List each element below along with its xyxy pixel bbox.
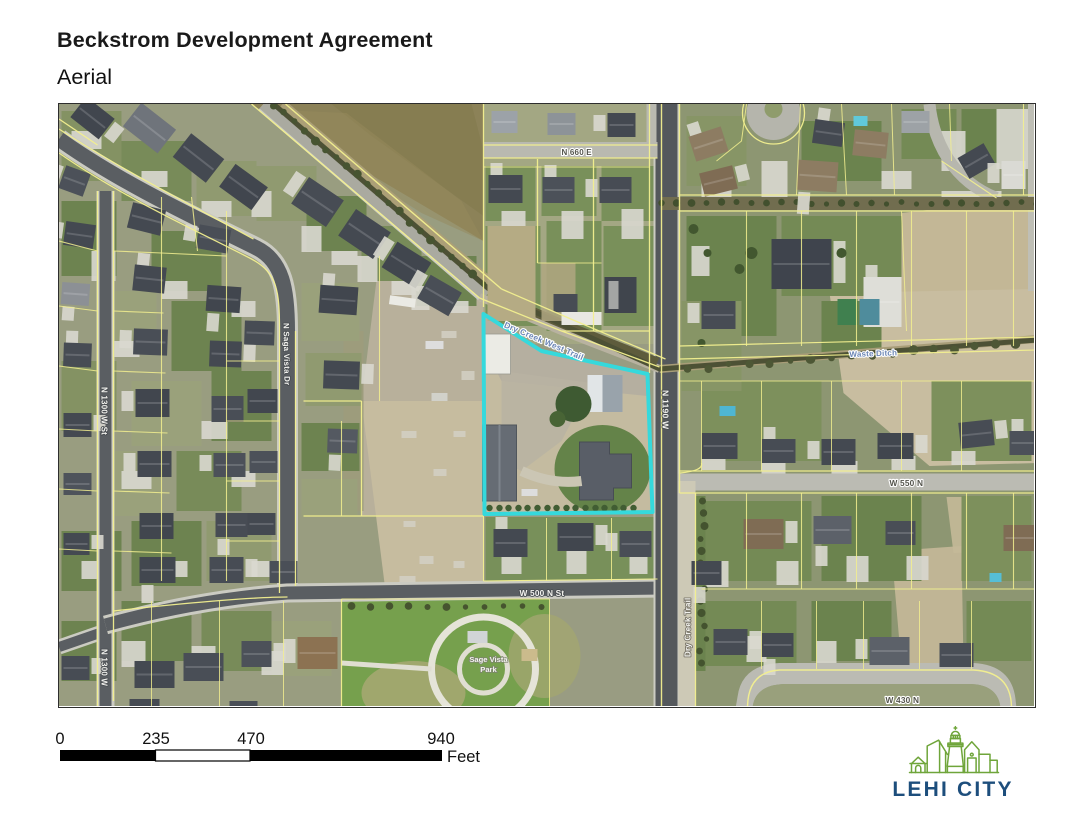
svg-text:N 1190 W: N 1190 W	[660, 390, 670, 430]
svg-text:235: 235	[142, 730, 170, 748]
svg-text:N 660 E: N 660 E	[561, 148, 592, 157]
svg-text:Feet: Feet	[447, 748, 480, 766]
svg-text:940: 940	[427, 730, 455, 748]
svg-text:N 1300 W: N 1300 W	[99, 649, 108, 686]
svg-text:W 550 N: W 550 N	[889, 478, 923, 488]
svg-text:Dry Creek Trail: Dry Creek Trail	[683, 598, 692, 657]
svg-text:N Saga Vista Dr: N Saga Vista Dr	[281, 323, 291, 386]
svg-text:W 500 N St: W 500 N St	[519, 588, 564, 598]
svg-text:470: 470	[237, 730, 265, 748]
svg-text:0: 0	[55, 730, 64, 748]
svg-text:N 1300 W St: N 1300 W St	[99, 387, 108, 435]
svg-text:Sage Vista: Sage Vista	[469, 655, 508, 664]
svg-text:W 430 N: W 430 N	[885, 695, 919, 705]
svg-text:LEHI CITY: LEHI CITY	[892, 778, 1013, 801]
svg-text:Waste Ditch: Waste Ditch	[849, 348, 897, 359]
svg-text:Park: Park	[480, 665, 497, 674]
